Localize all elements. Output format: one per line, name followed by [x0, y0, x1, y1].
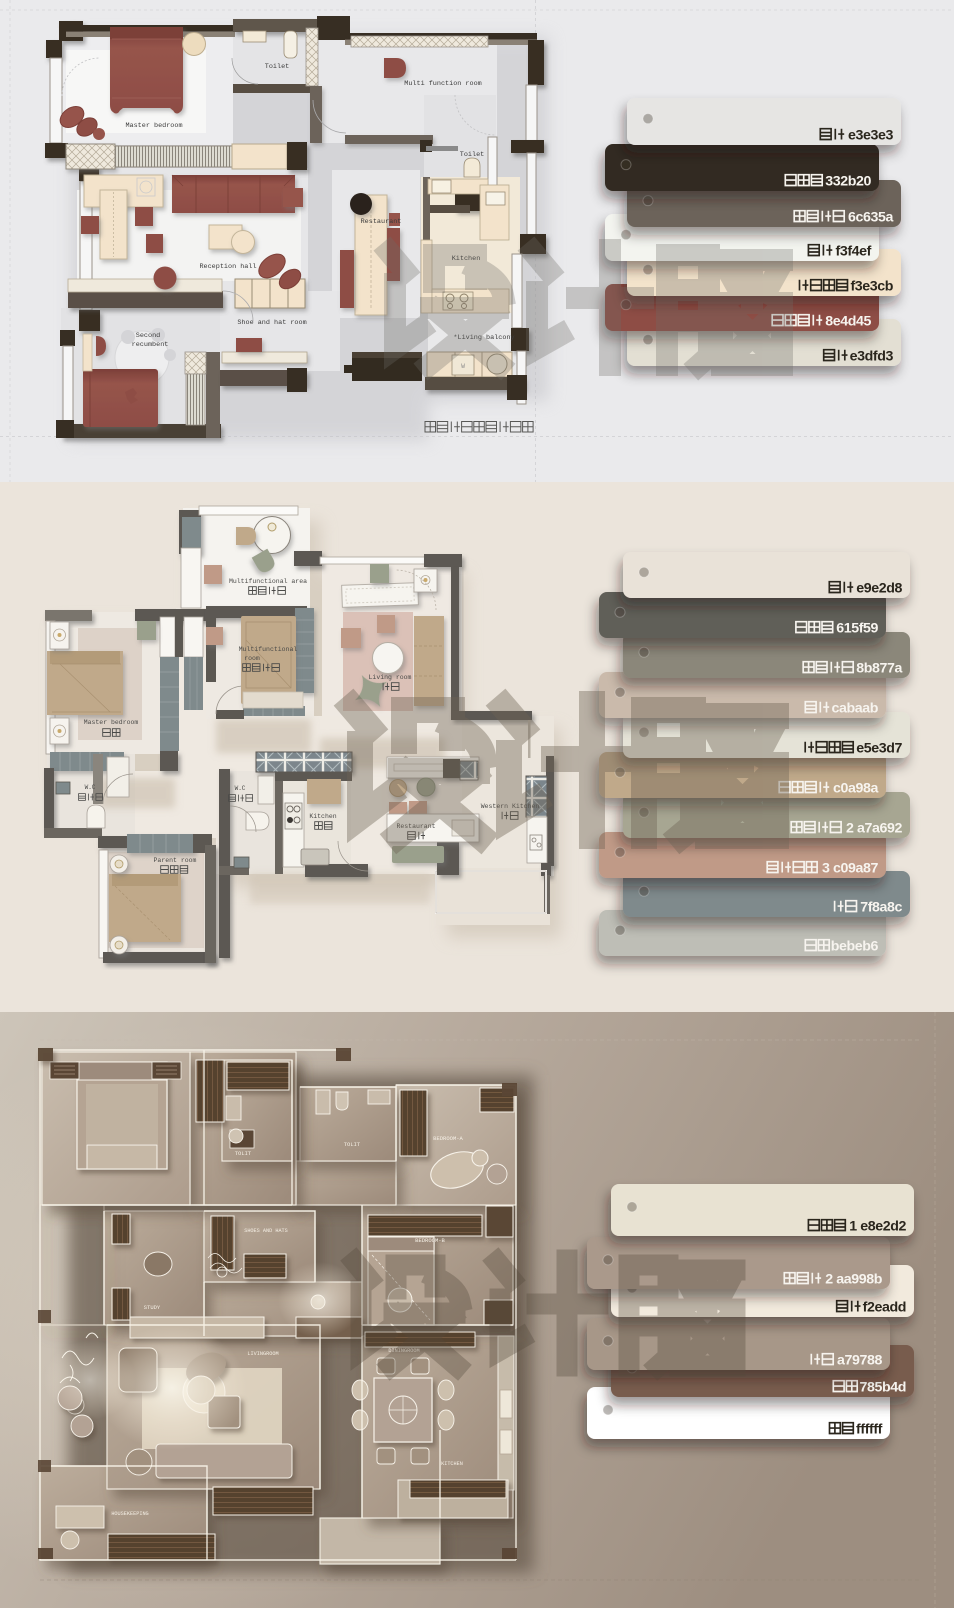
svg-text:Restaurant: Restaurant: [361, 218, 402, 226]
svg-text:KITCHEN: KITCHEN: [441, 1461, 463, 1467]
svg-text:Toilet: Toilet: [265, 63, 289, 71]
svg-text:3 c09a87: 3 c09a87: [822, 861, 878, 877]
svg-text:e9e2d8: e9e2d8: [856, 581, 902, 597]
svg-text:c0a98a: c0a98a: [833, 781, 878, 797]
svg-text:Multi function room: Multi function room: [404, 80, 482, 88]
svg-text:7f8a8c: 7f8a8c: [860, 900, 902, 916]
svg-text:HOUSEKEEPING: HOUSEKEEPING: [111, 1511, 148, 1517]
svg-text:8b877a: 8b877a: [856, 661, 902, 677]
svg-text:Shoe and hat room: Shoe and hat room: [237, 319, 306, 327]
svg-text:W.C: W.C: [235, 785, 246, 792]
svg-text:f3f4ef: f3f4ef: [836, 244, 872, 260]
svg-text:SHOES AND HATS: SHOES AND HATS: [244, 1228, 288, 1234]
svg-text:e3dfd3: e3dfd3: [850, 349, 894, 365]
svg-text:W: W: [461, 363, 465, 370]
svg-text:e5e3d7: e5e3d7: [856, 741, 902, 757]
svg-text:8e4d45: 8e4d45: [825, 314, 871, 330]
svg-text:2 a7a692: 2 a7a692: [846, 821, 902, 837]
svg-text:2 aa998b: 2 aa998b: [825, 1272, 882, 1288]
svg-text:a79788: a79788: [837, 1353, 882, 1369]
svg-text:Parent room: Parent room: [154, 857, 197, 864]
svg-text:bebeb6: bebeb6: [831, 939, 879, 955]
svg-text:Living room: Living room: [369, 674, 412, 681]
svg-text:LIVINGROOM: LIVINGROOM: [247, 1351, 278, 1357]
svg-text:BEDROOM-A: BEDROOM-A: [433, 1135, 463, 1142]
svg-text:Multifunctional: Multifunctional: [239, 646, 298, 653]
svg-text:TOLIT: TOLIT: [344, 1141, 361, 1148]
svg-text:Second: Second: [136, 332, 160, 340]
svg-text:Kitchen: Kitchen: [309, 813, 336, 820]
svg-text:TOLIT: TOLIT: [235, 1150, 252, 1157]
svg-text:6c635a: 6c635a: [848, 210, 893, 226]
svg-text:f2eadd: f2eadd: [863, 1300, 906, 1316]
svg-text:W.C: W.C: [85, 784, 96, 791]
svg-text:Master bedroom: Master bedroom: [125, 122, 182, 130]
svg-text:615f59: 615f59: [836, 621, 878, 637]
svg-text:Reception hall: Reception hall: [199, 263, 256, 271]
svg-text:Multifunctional area: Multifunctional area: [229, 578, 307, 585]
svg-text:e3e3e3: e3e3e3: [848, 128, 893, 144]
svg-text:f3e3cb: f3e3cb: [850, 279, 893, 295]
svg-text:ffffff: ffffff: [856, 1422, 883, 1438]
svg-text:cabaab: cabaab: [832, 701, 879, 717]
svg-text:Master bedroom: Master bedroom: [84, 719, 139, 726]
svg-text:room: room: [244, 655, 260, 662]
svg-text:STUDY: STUDY: [144, 1304, 161, 1311]
svg-text:785b4d: 785b4d: [860, 1380, 907, 1396]
svg-text:332b20: 332b20: [825, 174, 871, 190]
svg-text:recumbent: recumbent: [132, 341, 169, 349]
svg-text:1 e8e2d2: 1 e8e2d2: [849, 1219, 906, 1235]
svg-text:BEDROOM-B: BEDROOM-B: [415, 1237, 445, 1244]
